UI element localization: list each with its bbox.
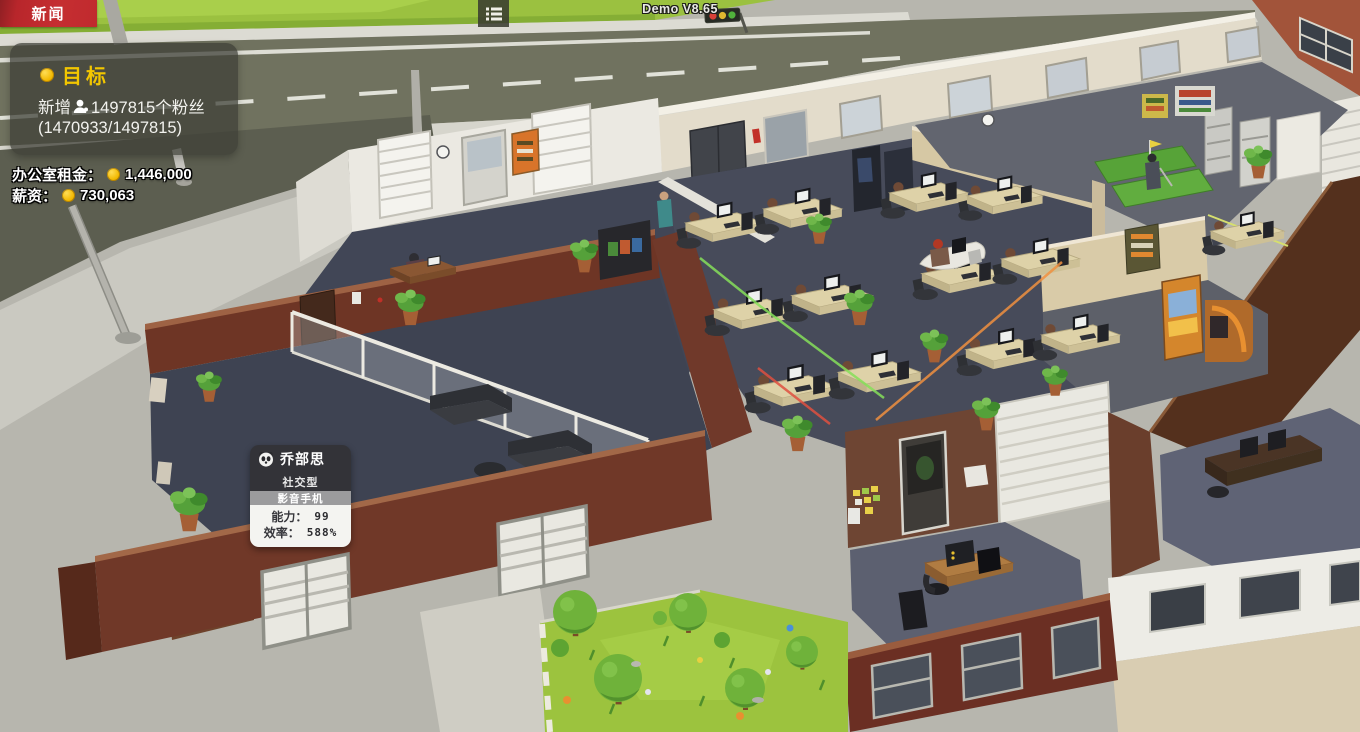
wall-clock (437, 146, 449, 158)
employee-tooltip: 乔部思 社交型 影音手机 能力： 99 效率： 588% (250, 445, 351, 547)
ability-row: 能力： 99 (250, 509, 351, 525)
salary-value: 730,063 (80, 187, 134, 204)
person-icon (73, 99, 89, 114)
tooltip-header: 乔部思 (250, 445, 351, 472)
menu-button[interactable] (478, 0, 509, 27)
ability-label: 能力： (271, 509, 307, 525)
list-icon (486, 7, 502, 21)
goal-panel: 目标 新增 1497815个粉丝 (1470933/1497815) (10, 43, 238, 155)
coin-icon (40, 68, 54, 82)
goal-title-text: 目标 (62, 60, 110, 89)
version-label: Demo V8.65 (600, 2, 760, 16)
efficiency-row: 效率： 588% (250, 525, 351, 541)
panda-icon (258, 451, 274, 467)
goal-progress: (1470933/1497815) (38, 119, 182, 138)
game-viewport: 新闻 Demo V8.65 目标 新增 1497815个粉丝 (1470933/… (0, 0, 1360, 732)
news-button[interactable]: 新闻 (0, 0, 97, 27)
employee-stats: 能力： 99 效率： 588% (250, 505, 351, 547)
salary-label: 薪资： (12, 185, 57, 206)
rent-label: 办公室租金： (12, 164, 102, 185)
goal-title: 目标 (40, 60, 110, 89)
goal-line1-suffix: 1497815个粉丝 (91, 94, 205, 118)
efficiency-label: 效率： (264, 525, 300, 541)
goal-line1-prefix: 新增 (38, 94, 71, 118)
employee-type: 社交型 (250, 472, 351, 491)
rent-value: 1,446,000 (125, 166, 192, 183)
coin-icon (62, 189, 75, 202)
employee-name: 乔部思 (280, 449, 325, 469)
coin-icon (107, 168, 120, 181)
garden (420, 588, 848, 732)
efficiency-value: 588% (307, 525, 338, 541)
rent-row: 办公室租金： 1,446,000 (12, 164, 192, 185)
employee-item: 影音手机 (250, 491, 351, 505)
salary-row: 薪资： 730,063 (12, 185, 134, 206)
ability-value: 99 (314, 509, 329, 525)
goal-line: 新增 1497815个粉丝 (38, 94, 205, 118)
